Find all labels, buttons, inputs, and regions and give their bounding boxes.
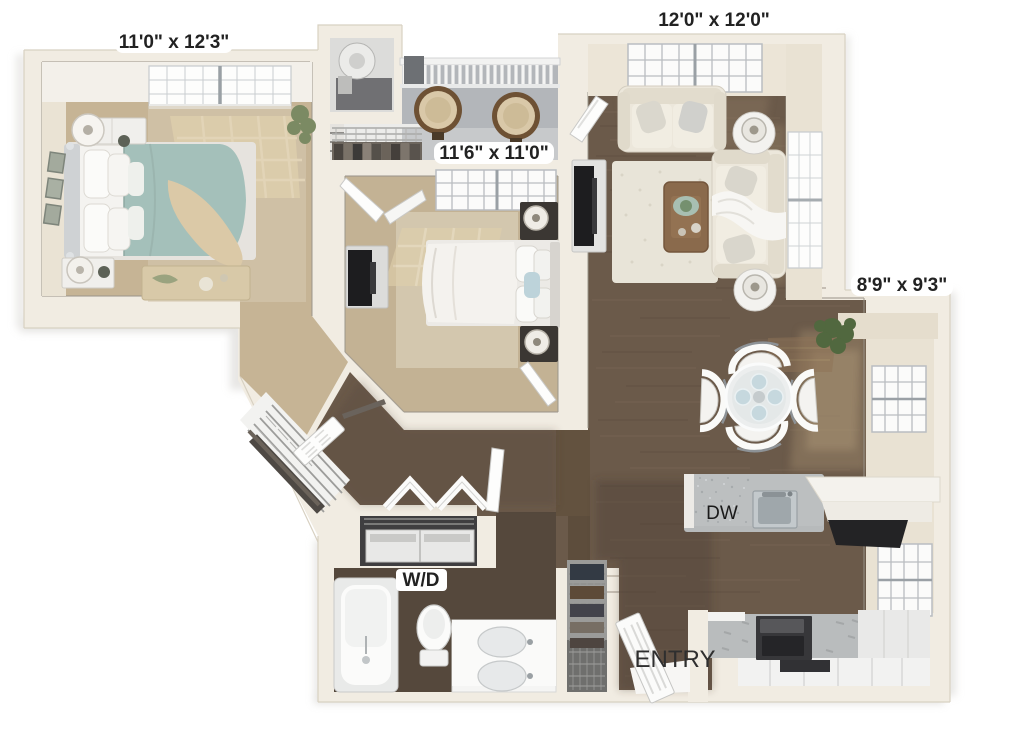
svg-text:DW: DW bbox=[706, 503, 738, 524]
svg-text:ENTRY: ENTRY bbox=[635, 646, 716, 673]
svg-text:11'0" x 12'3": 11'0" x 12'3" bbox=[119, 32, 230, 53]
svg-text:8'9" x 9'3": 8'9" x 9'3" bbox=[857, 275, 947, 296]
svg-text:W/D: W/D bbox=[403, 570, 440, 591]
svg-text:11'6" x 11'0": 11'6" x 11'0" bbox=[439, 143, 548, 164]
svg-text:12'0" x 12'0": 12'0" x 12'0" bbox=[658, 10, 770, 31]
